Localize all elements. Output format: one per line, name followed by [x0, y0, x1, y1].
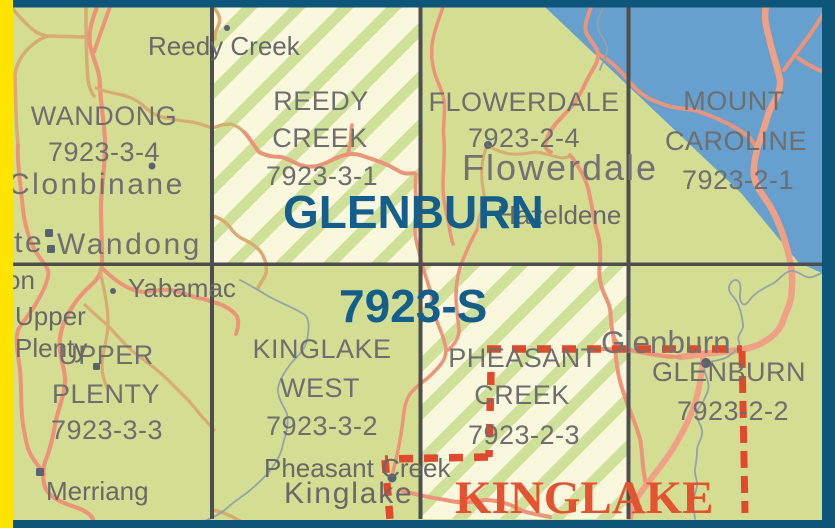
svg-text:FLOWERDALE: FLOWERDALE [428, 87, 619, 117]
svg-text:Glenburn: Glenburn [601, 324, 731, 360]
svg-text:REEDY: REEDY [273, 86, 369, 116]
svg-text:Merriang: Merriang [46, 476, 149, 506]
svg-text:7923-S: 7923-S [339, 280, 487, 332]
svg-text:MOUNT: MOUNT [683, 86, 784, 116]
svg-text:Flowerdale: Flowerdale [462, 147, 658, 188]
svg-text:7923-2-2: 7923-2-2 [677, 396, 789, 426]
svg-text:KINGLAKE: KINGLAKE [252, 334, 391, 364]
svg-text:PLENTY: PLENTY [52, 379, 160, 409]
svg-text:Yabamac: Yabamac [128, 273, 236, 303]
svg-text:Upper: Upper [15, 301, 86, 331]
svg-text:KINGLAKE: KINGLAKE [455, 472, 714, 524]
svg-text:CREEK: CREEK [474, 380, 570, 410]
svg-text:CAROLINE: CAROLINE [665, 126, 807, 156]
svg-text:GLENBURN: GLENBURN [652, 357, 806, 387]
svg-text:Clonbinane: Clonbinane [8, 168, 185, 201]
svg-text:CREEK: CREEK [272, 123, 368, 153]
svg-text:7923-2-3: 7923-2-3 [468, 420, 580, 450]
svg-text:WANDONG: WANDONG [31, 101, 178, 131]
svg-text:Wandong: Wandong [57, 228, 202, 261]
svg-text:PHEASANT: PHEASANT [448, 343, 598, 373]
svg-text:7923-2-1: 7923-2-1 [682, 165, 794, 195]
svg-text:7923-3-3: 7923-3-3 [51, 415, 163, 445]
svg-text:Kinglake: Kinglake [284, 477, 413, 510]
svg-text:GLENBURN: GLENBURN [283, 186, 544, 238]
svg-text:7923-3-4: 7923-3-4 [48, 137, 160, 167]
svg-text:Plenty: Plenty [15, 333, 87, 363]
svg-text:WEST: WEST [280, 373, 360, 403]
svg-text:7923-3-2: 7923-3-2 [266, 411, 378, 441]
svg-text:Reedy Creek: Reedy Creek [148, 31, 301, 61]
